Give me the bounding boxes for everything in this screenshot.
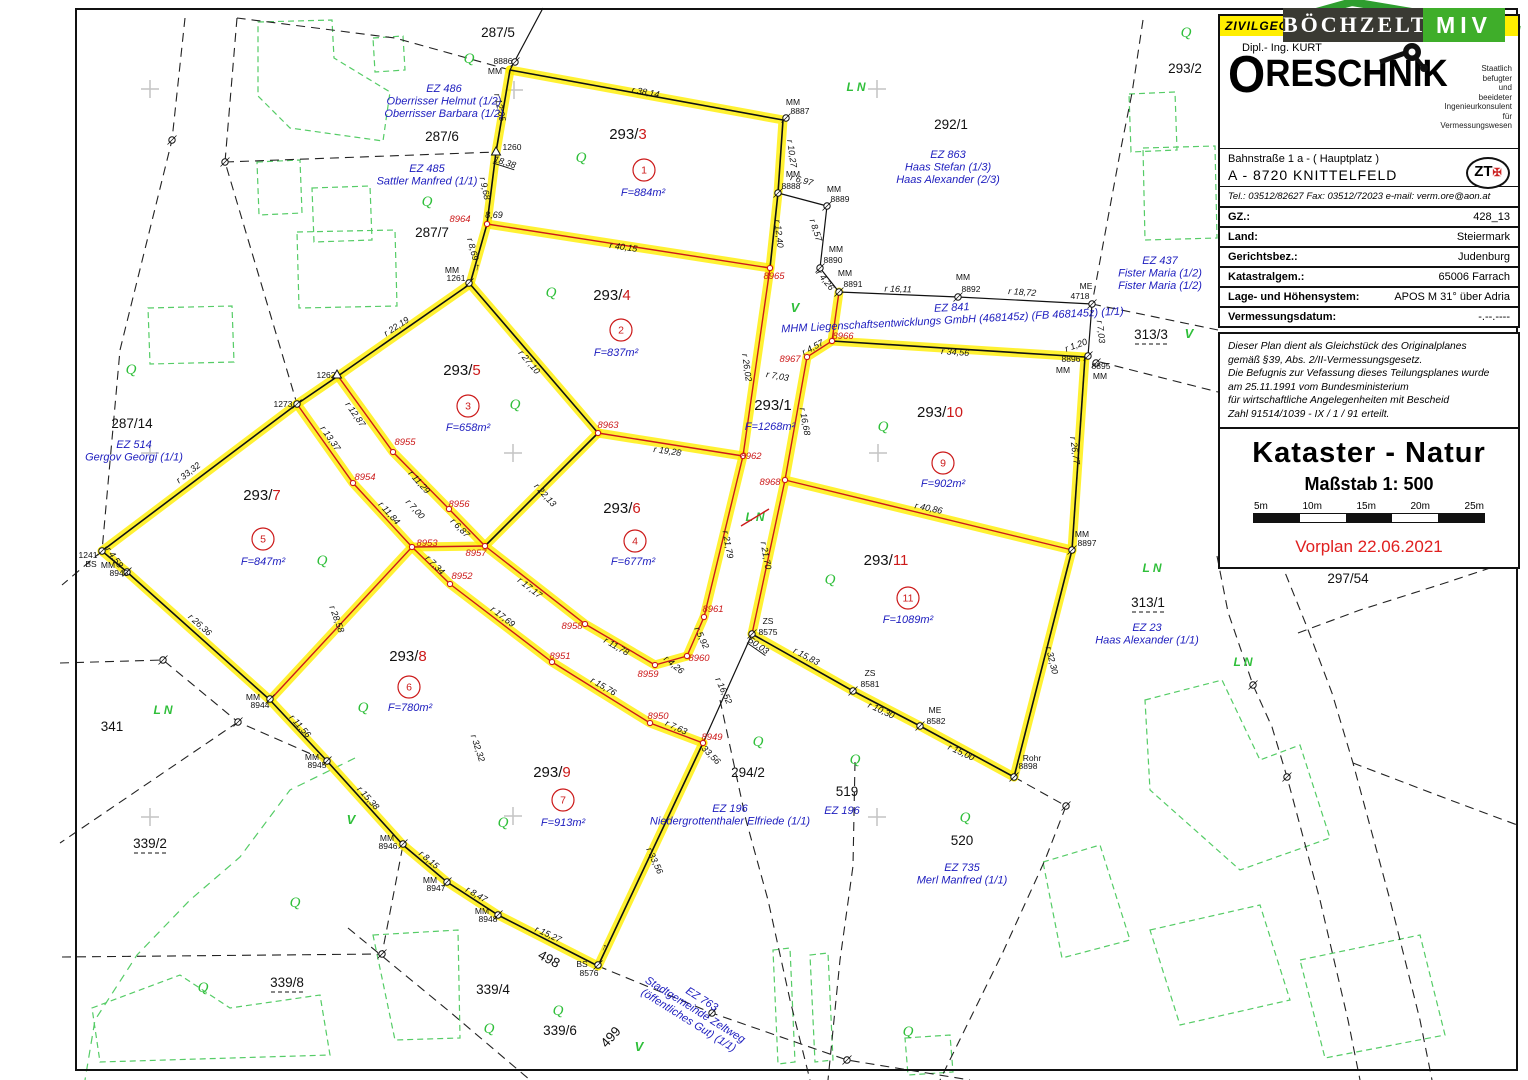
parcel-label: 293/3 <box>609 126 647 143</box>
usage-symbol-q: Q <box>198 980 209 996</box>
survey-point-label: ME <box>929 705 942 715</box>
survey-point-label: 8886 <box>494 56 513 66</box>
owner-label-line: EZ 196 <box>824 805 860 817</box>
building-outline <box>373 36 405 72</box>
parcel-area-label: F=884m² <box>621 187 666 199</box>
owner-label-line: EZ 23 <box>1132 622 1162 634</box>
survey-point-label: MM <box>829 244 843 254</box>
owner-label-line: Oberrisser Barbara (1/2) <box>384 108 504 120</box>
owner-label: EZ 437Fister Maria (1/2)Fister Maria (1/… <box>1118 255 1202 292</box>
parcel-label: 293/1 <box>754 397 792 414</box>
usage-symbol-q: Q <box>464 51 475 67</box>
owner-label: EZ 514Gergov Georgi (1/1) <box>85 439 183 464</box>
owner-label-line: Haas Alexander (2/3) <box>896 174 1000 186</box>
parcel-label: 293/4 <box>593 287 631 304</box>
survey-point-label: 8581 <box>861 679 880 689</box>
survey-point-label: 8575 <box>759 627 778 637</box>
new-point-label: 8961 <box>702 604 723 615</box>
survey-point-label: 8890 <box>824 255 843 265</box>
building-outline <box>148 306 234 364</box>
measure-label: r 7,03 <box>1095 320 1107 344</box>
survey-point-label: 1262 <box>317 370 336 380</box>
neighbor-parcel-label: 339/6 <box>543 1023 577 1038</box>
new-point-label: 8955 <box>394 437 416 448</box>
usage-symbol-q: Q <box>484 1021 495 1037</box>
survey-point-label: MM <box>1093 371 1107 381</box>
survey-point-label: MM <box>838 268 852 278</box>
version-note: Vorplan 22.06.2021 <box>1228 537 1510 557</box>
owner-label-line: Merl Manfred (1/1) <box>917 875 1008 887</box>
building-outline <box>312 186 372 242</box>
survey-point-label: 8896 <box>1062 354 1081 364</box>
parcel-boundary-dashed <box>60 722 238 843</box>
measure-label: r 8,57 <box>808 218 825 244</box>
owner-label-line: EZ 735 <box>944 862 980 874</box>
parcel-boundary-dashed <box>1217 556 1360 1080</box>
usage-symbol-q: Q <box>553 1003 564 1019</box>
owner-label-line: EZ 437 <box>1142 255 1178 267</box>
owner-label-line: Oberrisser Helmut (1/2) <box>387 96 502 108</box>
parcel-index-number: 9 <box>940 458 946 470</box>
new-point-marker <box>390 449 395 454</box>
parcel-area-label: F=902m² <box>921 478 966 490</box>
new-point-marker <box>701 614 706 619</box>
measure-label: r 7,00 <box>404 497 427 521</box>
owner-label-line: EZ 486 <box>426 83 462 95</box>
new-boundary-measured <box>297 404 703 743</box>
survey-point-label: 8892 <box>962 284 981 294</box>
neighbor-parcel-label: 339/4 <box>476 982 510 997</box>
usage-symbol-q: Q <box>422 194 433 210</box>
measure-label: 33,56 <box>700 743 723 766</box>
survey-point-label: ZS <box>865 668 876 678</box>
info-row-land: Land:Steiermark <box>1218 226 1520 248</box>
zivilgeometer-banner: ZIVILGEOMETER BÖCHZELT MIV <box>1220 16 1518 36</box>
new-point-marker <box>582 621 587 626</box>
building-outline <box>1043 845 1130 958</box>
new-point-label: 8967 <box>779 354 801 365</box>
measure-label: r 34,56 <box>941 346 970 358</box>
neighbor-parcel-label: 519 <box>836 784 859 799</box>
owner-label-line: Haas Stefan (1/3) <box>905 162 992 174</box>
highlight-underlay <box>485 546 687 665</box>
info-row-datum: Vermessungsdatum:-.--.---- <box>1218 306 1520 328</box>
scale-label: Maßstab 1: 500 <box>1228 474 1510 495</box>
usage-symbol-q: Q <box>960 810 971 826</box>
parcel-label: 293/11 <box>864 552 909 569</box>
owner-label-line: Haas Alexander (1/1) <box>1095 635 1199 647</box>
parcel-index-number: 4 <box>632 536 638 548</box>
parcel-label: 293/10 <box>917 404 963 421</box>
neighbor-parcel-label: 287/14 <box>111 416 153 431</box>
parcel-index-number: 5 <box>260 534 266 546</box>
neighbor-parcel-label: 292/1 <box>934 117 968 132</box>
survey-point-label: 4718 <box>1071 291 1090 301</box>
usage-symbol-v: V <box>1185 326 1195 341</box>
owner-label-line: EZ 514 <box>116 439 151 451</box>
survey-point-label: 8948 <box>479 914 498 924</box>
measure-label: r 7,03 <box>765 369 789 383</box>
new-point-label: 8959 <box>637 669 659 680</box>
north-tick-arrow: ↑ <box>474 262 481 274</box>
boechzelt-logo: BÖCHZELT <box>1283 8 1423 42</box>
survey-point-label: MM <box>956 272 970 282</box>
owner-label-line: EZ 485 <box>409 163 445 175</box>
vegetation-boundary <box>85 758 355 1080</box>
usage-symbol-q: Q <box>510 397 521 413</box>
building-outline <box>258 20 390 141</box>
survey-point-label: 8889 <box>831 194 850 204</box>
usage-symbol-ln: L N <box>1142 561 1161 575</box>
new-point-label: 8965 <box>763 271 785 282</box>
building-outline <box>1145 680 1330 870</box>
map-title: Kataster - Natur <box>1228 437 1510 470</box>
usage-symbol-q: Q <box>126 362 137 378</box>
owner-label: EZ 486Oberrisser Helmut (1/2)Oberrisser … <box>384 83 504 120</box>
parcel-area-label: F=847m² <box>241 556 286 568</box>
usage-symbol-q: Q <box>498 815 509 831</box>
parcel-boundary-dashed <box>1298 558 1520 633</box>
title-block: ZIVILGEOMETER BÖCHZELT MIV Dipl.- Ing. K… <box>1218 14 1520 569</box>
legal-note: Dieser Plan dient als Gleichstück des Or… <box>1218 332 1520 429</box>
new-point-label: 8952 <box>451 571 473 582</box>
survey-point-label: 1273 <box>274 399 293 409</box>
neighbor-parcel-label: 313/3 <box>1134 327 1168 342</box>
owner-label: EZ 485Sattler Manfred (1/1) <box>377 163 478 188</box>
survey-point-label: 8582 <box>927 716 946 726</box>
neighbor-parcel-label: 287/6 <box>425 129 459 144</box>
highlight-underlay <box>338 376 485 546</box>
kataster-section: Kataster - Natur Maßstab 1: 500 5m10m15m… <box>1218 429 1520 569</box>
cadastral-plan-page: ↑↑8886MMMM8887MM8888MM8889MM8890MM8891MM… <box>0 0 1528 1080</box>
survey-point-label: 8945 <box>308 760 327 770</box>
new-point-label: 8953 <box>416 538 438 549</box>
parcel-index-number: 6 <box>406 682 412 694</box>
parcel-label: 293/7 <box>243 487 281 504</box>
scale-ticks: 5m10m15m20m25m <box>1254 501 1484 512</box>
neighbor-parcel-label: 287/7 <box>415 225 449 240</box>
usage-symbol-q: Q <box>850 752 861 768</box>
address-section: Bahnstraße 1 a - ( Hauptplatz ) A - 8720… <box>1220 149 1518 187</box>
parcel-index-number: 11 <box>903 593 914 605</box>
parcel-area-label: F=677m² <box>611 556 656 568</box>
survey-point-label: 1261 <box>447 273 466 283</box>
info-row-system: Lage- und Höhensystem:APOS M 31° über Ad… <box>1218 286 1520 308</box>
measure-label: r 26,02 <box>740 353 754 382</box>
miv-logo: MIV <box>1423 8 1505 42</box>
survey-point-label: 8946 <box>379 841 398 851</box>
neighbor-parcel-label: 294/2 <box>731 765 765 780</box>
building-outline <box>1129 92 1177 152</box>
new-point-label: 8957 <box>465 548 487 559</box>
new-point-marker <box>652 662 657 667</box>
measure-label: r 18,72 <box>1008 286 1037 298</box>
new-point-label: 8968 <box>759 477 781 488</box>
info-row-gerichtsbez: Gerichtsbez.:Judenburg <box>1218 246 1520 268</box>
info-row-gz: GZ.:428_13 <box>1218 206 1520 228</box>
owner-label-line: Fister Maria (1/2) <box>1118 268 1202 280</box>
contact-line: Tel.: 03512/82627 Fax: 03512/72023 e-mai… <box>1220 187 1518 206</box>
survey-point-label: ME <box>1080 281 1093 291</box>
info-row-katastralgem: Katastralgem.:65006 Farrach <box>1218 266 1520 288</box>
new-point-marker <box>782 477 787 482</box>
owner-label-line: Sattler Manfred (1/1) <box>377 176 478 188</box>
survey-point-label: MM <box>488 66 502 76</box>
measure-label: r 32,32 <box>469 733 487 763</box>
usage-symbol-q: Q <box>1181 25 1192 41</box>
owner-label-line: EZ 841 <box>934 301 970 315</box>
parcel-boundary-dashed <box>62 845 403 957</box>
new-point-label: 8964 <box>449 214 470 225</box>
usage-symbol-q: Q <box>290 895 301 911</box>
usage-symbol-q: Q <box>878 419 889 435</box>
usage-symbol-v: V <box>635 1039 645 1054</box>
measure-label: r 10,27 <box>785 139 799 169</box>
neighbor-parcel-label: 297/54 <box>1327 571 1369 586</box>
new-point-label: 8962 <box>740 451 762 462</box>
survey-point-label: MM <box>1056 365 1070 375</box>
owner-label-line: EZ 196 <box>712 803 748 815</box>
parcel-boundary-dashed <box>348 928 530 1080</box>
survey-point-label: 1260 <box>503 142 522 152</box>
building-outline <box>373 930 460 1040</box>
neighbor-parcel-label: 293/2 <box>1168 61 1202 76</box>
usage-symbol-v: V <box>347 812 357 827</box>
new-point-label: 8949 <box>701 732 723 743</box>
parcel-boundary-dashed <box>1100 362 1218 392</box>
parcel-boundary-dashed <box>1092 20 1143 304</box>
zt-emblem: ZT✠ <box>1466 157 1510 189</box>
parcel-boundary-dashed <box>225 18 297 404</box>
new-point-label: 8951 <box>549 651 570 662</box>
parcel-label: 293/6 <box>603 500 641 517</box>
building-outline <box>1143 146 1217 240</box>
measure-label: r 6,87 <box>448 516 472 540</box>
owner-label: EZ 23Haas Alexander (1/1) <box>1095 622 1199 647</box>
parcel-boundary-dashed <box>1280 560 1432 1080</box>
new-point-marker <box>447 581 452 586</box>
building-outline <box>810 953 833 1062</box>
parcel-area-label: F=913m² <box>541 817 586 829</box>
neighbor-parcel-label: 520 <box>951 833 974 848</box>
building-outline <box>1300 935 1445 1058</box>
grid-cross <box>868 808 886 826</box>
new-boundary-measured <box>785 480 1072 550</box>
owner-label-line: EZ 863 <box>930 149 966 161</box>
building-outline <box>257 160 302 215</box>
usage-symbol-ln: L N <box>153 703 172 717</box>
new-point-label: 8958 <box>561 621 583 632</box>
usage-symbol-q: Q <box>825 572 836 588</box>
neighbor-parcel-label: 313/1 <box>1131 595 1165 610</box>
parcel-area-label: F=837m² <box>594 347 639 359</box>
building-outline <box>1150 905 1290 1025</box>
parcel-boundary-dashed <box>225 152 496 162</box>
scale-bar <box>1253 513 1485 523</box>
surveyor-logo-section: Dipl.- Ing. KURT ORESCHNIK Staatlich bef… <box>1220 36 1518 149</box>
survey-point-label: 8943 <box>110 568 129 578</box>
owner-label-line: Stadtgemeinde Zeltweg <box>643 974 748 1046</box>
new-point-marker <box>595 430 600 435</box>
neighbor-parcel-label: 287/5 <box>481 25 515 40</box>
owner-label: EZ 863Haas Stefan (1/3)Haas Alexander (2… <box>896 149 1000 186</box>
grid-cross <box>868 80 886 98</box>
parcel-area-label: F=1268m² <box>745 421 796 433</box>
usage-symbol-v: V <box>791 300 801 315</box>
owner-label: EZ 763Stadtgemeinde Zeltweg(öffentliches… <box>636 964 754 1057</box>
neighbor-parcel-label: 339/2 <box>133 836 167 851</box>
grid-cross <box>141 808 159 826</box>
usage-symbol-q: Q <box>317 553 328 569</box>
new-point-marker <box>484 221 489 226</box>
owner-label-line: Niedergrottenthaler Elfriede (1/1) <box>650 816 811 828</box>
street-address: Bahnstraße 1 a - ( Hauptplatz ) <box>1228 153 1510 165</box>
grid-cross <box>141 80 159 98</box>
survey-point-label: ZS <box>763 616 774 626</box>
neighbor-parcel-label: 499 <box>598 1024 624 1051</box>
owner-label: EZ 196 <box>824 805 860 817</box>
measure-label: r 4,26 <box>814 268 836 292</box>
parcel-area-label: F=780m² <box>388 702 433 714</box>
survey-point-label: 8944 <box>251 700 270 710</box>
usage-symbol-q: Q <box>753 734 764 750</box>
grid-cross <box>869 444 887 462</box>
parcel-label: 293/9 <box>533 764 571 781</box>
survey-point-label: 8947 <box>427 883 446 893</box>
owner-label-line: Gergov Georgi (1/1) <box>85 452 183 464</box>
neighbor-parcel-label: 339/8 <box>270 975 304 990</box>
parcel-index-number: 1 <box>641 165 647 177</box>
measure-label: r 16,11 <box>884 284 912 295</box>
usage-symbol-q: Q <box>903 1024 914 1040</box>
measure-label: r 40,15 <box>609 240 639 254</box>
usage-symbol-ln: L N <box>1233 655 1252 669</box>
survey-point-label: 8897 <box>1078 538 1097 548</box>
new-point-marker <box>767 265 772 270</box>
survey-point-label: 8887 <box>791 106 810 116</box>
new-point-marker <box>409 544 414 549</box>
survey-point-label: MM <box>827 184 841 194</box>
usage-symbol-ln: L N <box>846 80 865 94</box>
parcel-boundary-dashed <box>1353 763 1520 826</box>
new-point-label: 8960 <box>688 653 710 664</box>
parcel-label: 293/8 <box>389 648 427 665</box>
usage-symbol-q: Q <box>546 285 557 301</box>
survey-point-label: BS <box>85 559 97 569</box>
new-point-label: 8966 <box>832 331 854 342</box>
parcel-index-number: 2 <box>618 325 624 337</box>
parcel-boundary-dashed <box>102 18 185 551</box>
grid-cross <box>504 444 522 462</box>
survey-point-label: 8576 <box>580 968 599 978</box>
measure-label: r 1,20 <box>1063 337 1088 354</box>
new-boundary-measured <box>485 546 687 665</box>
parcel-label: 293/5 <box>443 362 481 379</box>
highlight-underlay <box>297 404 703 743</box>
parcel-area-label: F=658m² <box>446 422 491 434</box>
credentials: Staatlich befugter und beeideter Ingenie… <box>1422 64 1512 131</box>
parcel-index-number: 7 <box>560 795 566 807</box>
measure-label: 8,69 <box>485 210 503 220</box>
new-point-label: 8954 <box>354 472 375 483</box>
survey-point-label: 8895 <box>1092 361 1111 371</box>
parcel-boundary-dashed <box>720 700 810 1080</box>
owner-label-line: Fister Maria (1/2) <box>1118 280 1202 292</box>
owner-label: EZ 735Merl Manfred (1/1) <box>917 862 1008 887</box>
building-outline <box>773 948 795 1064</box>
parcel-area-label: F=1089m² <box>883 614 934 626</box>
usage-symbol-q: Q <box>576 150 587 166</box>
survey-point-label: 8891 <box>844 279 863 289</box>
survey-point-label: 8898 <box>1019 761 1038 771</box>
usage-symbol-q: Q <box>358 700 369 716</box>
neighbor-parcel-label: 341 <box>101 719 124 734</box>
new-boundary <box>1014 550 1072 777</box>
building-outline <box>297 230 397 308</box>
new-point-label: 8956 <box>448 499 470 510</box>
parcel-index-number: 3 <box>465 401 471 413</box>
new-point-label: 8963 <box>597 420 619 431</box>
